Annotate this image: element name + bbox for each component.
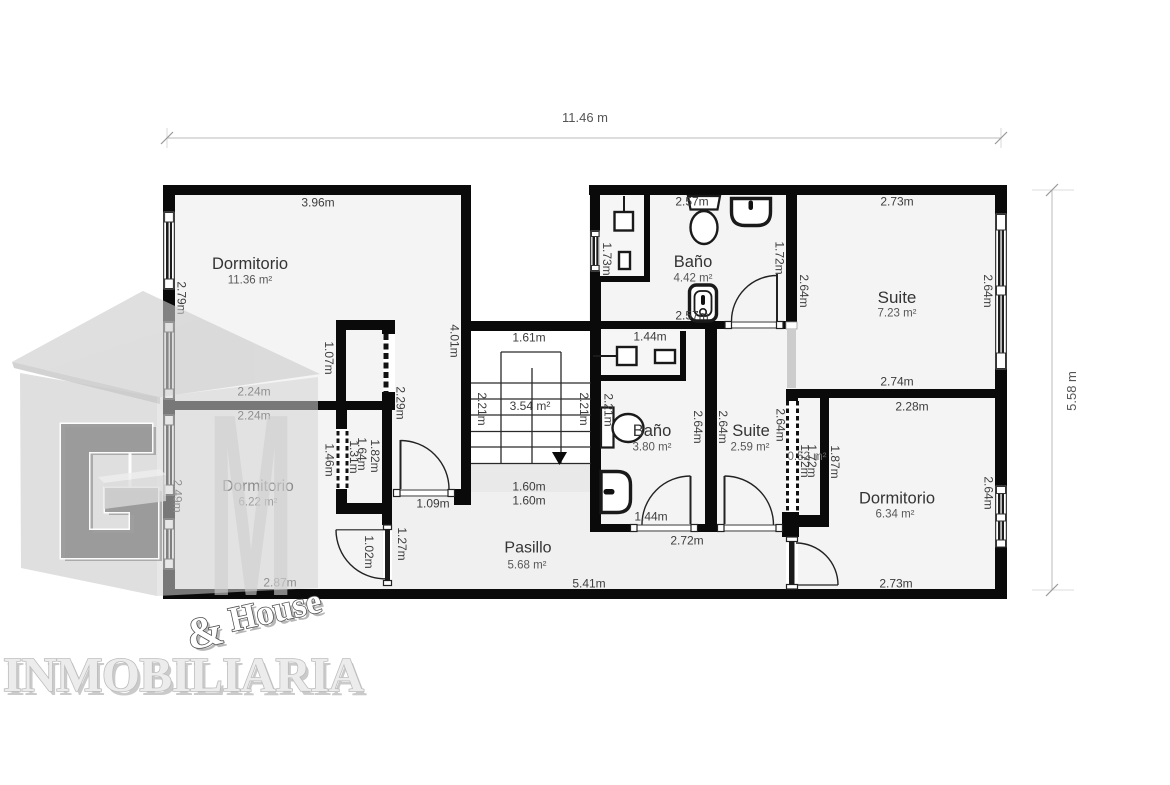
svg-text:2.72m: 2.72m [670,534,703,548]
svg-text:1.60m: 1.60m [512,480,545,494]
svg-text:1.44m: 1.44m [633,330,666,344]
svg-text:Suite: Suite [878,288,917,307]
svg-text:3.96m: 3.96m [301,196,334,210]
svg-text:1.09m: 1.09m [416,497,449,511]
svg-text:1.72m: 1.72m [805,444,819,477]
svg-text:2.21m: 2.21m [602,393,616,426]
svg-text:5.58 m: 5.58 m [1064,371,1079,411]
svg-text:2.21m: 2.21m [577,392,591,425]
svg-text:11.46 m: 11.46 m [562,110,608,125]
svg-text:2.64m: 2.64m [691,410,705,443]
svg-text:2.28m: 2.28m [895,400,928,414]
svg-text:1.46m: 1.46m [323,443,337,476]
svg-text:1.60m: 1.60m [512,494,545,508]
svg-text:Suite: Suite [732,422,770,440]
svg-text:2.57m: 2.57m [675,195,708,209]
svg-text:1.27m: 1.27m [395,527,409,560]
svg-text:4.01m: 4.01m [448,324,462,357]
svg-text:1.07m: 1.07m [322,341,336,374]
svg-text:1.44m: 1.44m [634,510,667,524]
svg-text:2.73m: 2.73m [880,195,913,209]
svg-text:1.31m: 1.31m [347,440,361,473]
svg-text:2.64m: 2.64m [716,410,730,443]
svg-text:5.41m: 5.41m [572,577,605,591]
svg-text:2.64m: 2.64m [797,274,811,307]
svg-text:7.23 m²: 7.23 m² [878,308,917,320]
svg-text:Dormitorio: Dormitorio [859,490,935,508]
svg-text:4.42 m²: 4.42 m² [674,273,713,285]
svg-text:1.73m: 1.73m [600,242,614,275]
svg-text:2.29m: 2.29m [394,386,408,419]
svg-text:2.64m: 2.64m [981,274,995,307]
svg-text:Pasillo: Pasillo [504,540,551,557]
svg-text:1.61m: 1.61m [512,331,545,345]
svg-text:5.68 m²: 5.68 m² [508,560,547,572]
svg-text:Baño: Baño [633,422,672,440]
svg-text:1.02m: 1.02m [362,535,376,568]
svg-text:3.80 m²: 3.80 m² [633,442,672,454]
svg-text:2.64m: 2.64m [774,408,788,441]
svg-text:6.34 m²: 6.34 m² [876,509,915,521]
svg-text:3.54 m²: 3.54 m² [510,399,551,413]
svg-text:1.87m: 1.87m [828,445,842,478]
svg-text:INMOBILIARIA: INMOBILIARIA [3,647,365,702]
svg-text:Dormitorio: Dormitorio [212,255,288,273]
svg-text:1.72m: 1.72m [773,241,787,274]
svg-text:2.64m: 2.64m [982,476,996,509]
svg-text:2.21m: 2.21m [475,392,489,425]
svg-text:1.82m: 1.82m [368,439,382,472]
svg-text:2.57m: 2.57m [675,309,708,323]
svg-text:11.36 m²: 11.36 m² [228,275,273,287]
svg-text:2.59 m²: 2.59 m² [731,442,770,454]
svg-text:2.74m: 2.74m [880,375,913,389]
svg-text:2.73m: 2.73m [879,577,912,591]
svg-text:Baño: Baño [674,253,713,271]
